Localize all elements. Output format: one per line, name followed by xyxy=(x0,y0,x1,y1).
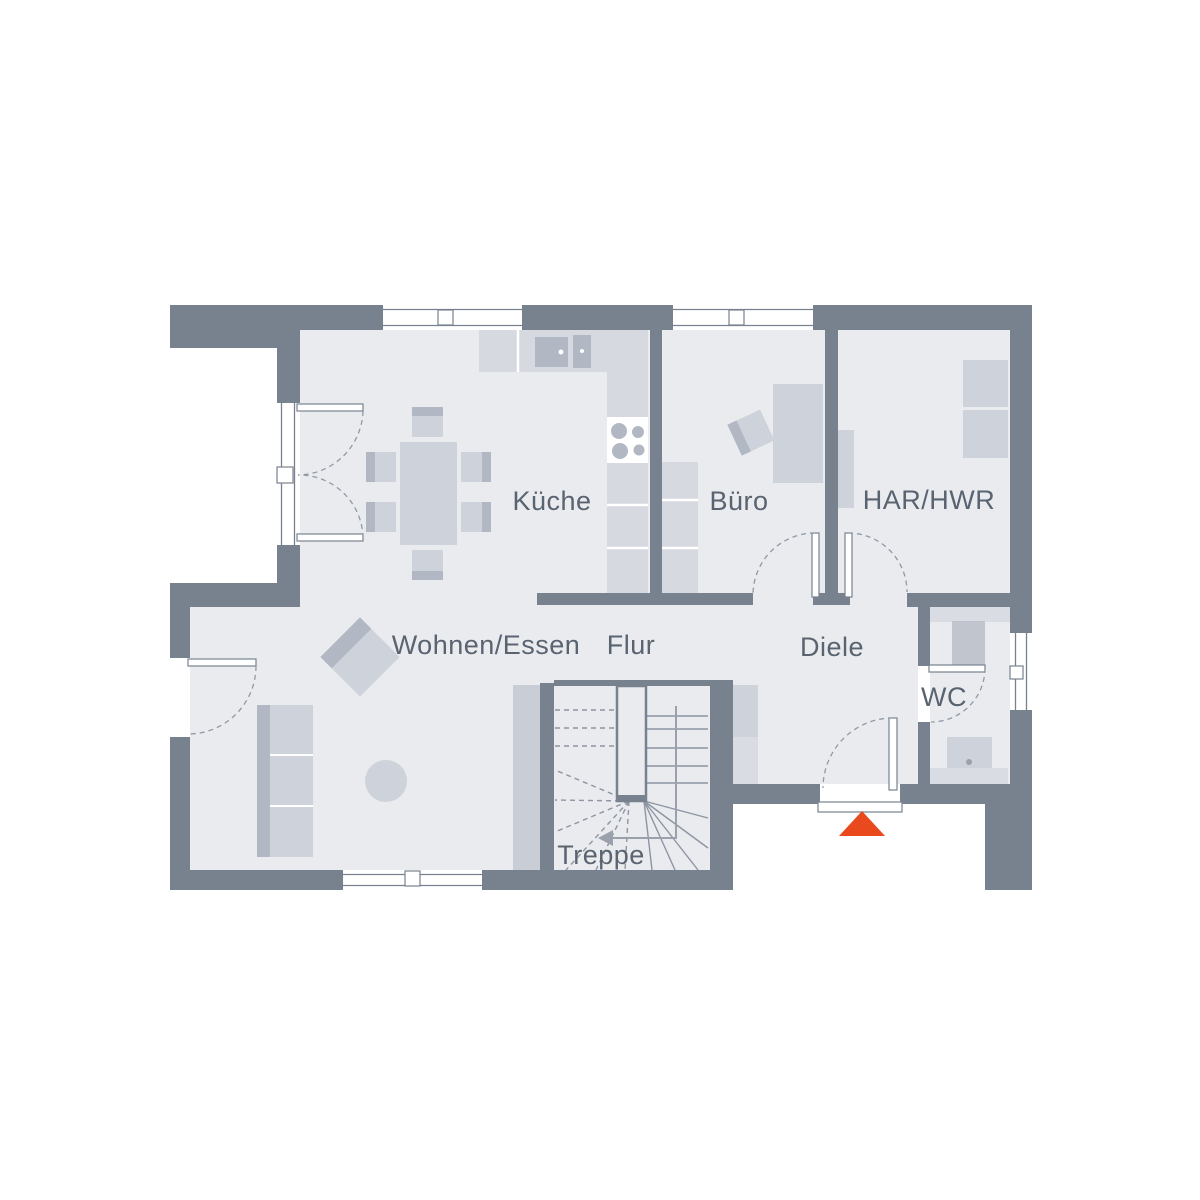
wall-kitchen-office xyxy=(650,330,662,600)
window-office xyxy=(673,305,813,330)
wall-office-utility xyxy=(825,330,838,605)
appliance-knob xyxy=(580,349,584,353)
window-mullion xyxy=(438,310,453,325)
wall-left xyxy=(170,607,190,890)
room-label-diele: Diele xyxy=(800,632,864,662)
wall-right xyxy=(1010,305,1032,784)
door-leaf xyxy=(929,665,985,672)
sink-drain xyxy=(559,350,564,355)
door-leaf xyxy=(297,534,363,541)
entrance-threshold xyxy=(818,802,902,812)
window-dining xyxy=(383,305,522,330)
window-wc xyxy=(1010,633,1032,710)
utility-cabinet xyxy=(837,430,854,508)
window-living-bottom xyxy=(343,870,482,890)
dining-chair-back xyxy=(482,452,491,482)
door-leaf xyxy=(297,404,363,411)
dining-chair-back xyxy=(412,407,443,416)
stove-burner xyxy=(632,426,644,438)
stove xyxy=(607,417,648,463)
wc-counter xyxy=(930,605,1010,622)
stair-void xyxy=(617,686,646,801)
counter-side-run xyxy=(607,372,648,597)
dryer xyxy=(963,410,1008,458)
sofa-back xyxy=(257,705,270,857)
stove-burner xyxy=(612,443,628,459)
door-handle xyxy=(277,467,293,483)
dining-chair-back xyxy=(366,452,375,482)
office-shelf xyxy=(662,462,698,597)
room-label-wohnen-essen: Wohnen/Essen xyxy=(392,630,581,660)
wall-bottom-right-stub xyxy=(985,804,1032,890)
wall-left-step xyxy=(170,583,300,607)
floor-plan-svg: Küche Büro HAR/HWR Wohnen/Essen Flur Die… xyxy=(0,0,1200,1200)
wall-stair-top xyxy=(554,680,710,686)
stove-burner xyxy=(634,445,645,456)
sofa-seat xyxy=(270,705,313,857)
room-label-treppe: Treppe xyxy=(557,840,645,870)
room-label-wc: WC xyxy=(921,682,967,712)
door-leaf xyxy=(845,533,852,597)
stair-void-cap xyxy=(617,795,646,802)
sofa xyxy=(257,705,313,857)
window-handle xyxy=(1010,666,1023,679)
room-label-flur: Flur xyxy=(607,630,656,660)
entrance-arrow xyxy=(839,811,885,836)
wall-hall-top xyxy=(537,593,753,605)
side-table xyxy=(365,760,407,802)
dining-chair-back xyxy=(482,502,491,532)
wall-stair-left xyxy=(540,683,554,870)
door-leaf xyxy=(889,718,897,790)
shaft-column xyxy=(513,685,540,870)
window-mullion xyxy=(405,871,420,886)
wall-utility-wc xyxy=(907,593,1010,607)
dining-table xyxy=(400,442,457,545)
door-leaf xyxy=(188,659,256,666)
window-mullion xyxy=(729,310,744,325)
desk xyxy=(773,384,823,483)
wall-stair-right xyxy=(710,680,733,870)
room-label-buero: Büro xyxy=(709,486,768,516)
room-label-har-hwr: HAR/HWR xyxy=(863,485,996,515)
washer xyxy=(963,360,1008,407)
door-leaf xyxy=(812,533,819,597)
wc-mat xyxy=(928,768,1008,784)
floor-plan-canvas: Küche Büro HAR/HWR Wohnen/Essen Flur Die… xyxy=(0,0,1200,1200)
room-label-kueche: Küche xyxy=(512,486,591,516)
wc-basin xyxy=(952,621,985,668)
stove-burner xyxy=(611,423,627,439)
dining-chair-back xyxy=(412,571,443,580)
wc-toilet-button xyxy=(966,759,972,765)
dining-chair-back xyxy=(366,502,375,532)
